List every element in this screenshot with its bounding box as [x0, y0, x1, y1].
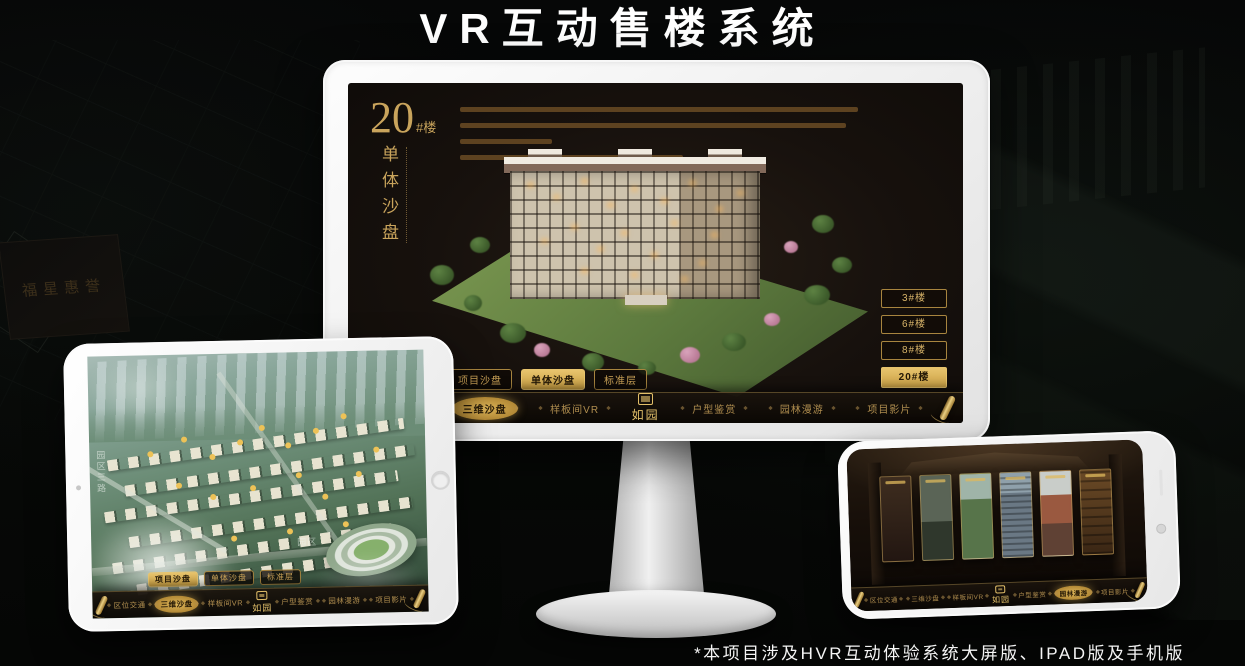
- floor-button-3[interactable]: 3#楼: [881, 289, 947, 308]
- nav-item-garden-roam[interactable]: 园林漫游: [769, 397, 835, 420]
- tree: [722, 333, 746, 351]
- phone-speaker-icon: [1159, 470, 1163, 496]
- scene-card-row: [879, 468, 1114, 562]
- seal-icon: [996, 585, 1006, 593]
- stadium: [321, 515, 422, 585]
- tree: [832, 257, 852, 273]
- nav-item-3d-sandtable[interactable]: 三维沙盘: [154, 595, 198, 613]
- tablet-device: 园区三路 园区 项目沙盘 单体沙盘 标准层 区位交通 三维沙盘 样板间VR 如园…: [63, 336, 459, 632]
- monitor-sub-tabs: 项目沙盘 单体沙盘 标准层: [448, 369, 647, 390]
- tab-standard-floor[interactable]: 标准层: [260, 569, 301, 585]
- scene-card-building[interactable]: [999, 471, 1034, 558]
- block-number: 20: [370, 93, 414, 142]
- phone-nav-bar: 区位交通 三维沙盘 样板间VR 如园 户型鉴赏 园林漫游 项目影片: [851, 577, 1148, 611]
- scene-card-courtyard[interactable]: [919, 474, 954, 561]
- nav-item-unit-gallery[interactable]: 户型鉴赏: [681, 397, 747, 420]
- building-facade: [510, 171, 760, 299]
- tablet-sub-tabs: 项目沙盘 单体沙盘 标准层: [148, 569, 301, 587]
- nav-item-project-film[interactable]: 项目影片: [856, 397, 922, 420]
- background-buildings: [965, 47, 1205, 212]
- scroll-icon[interactable]: [939, 395, 957, 421]
- tablet-home-button[interactable]: [431, 471, 450, 490]
- monitor-stand-neck: [609, 440, 704, 594]
- scroll-icon[interactable]: [1134, 581, 1145, 599]
- nav-item-location-traffic[interactable]: 区位交通: [107, 596, 151, 614]
- lit-windows: [510, 171, 515, 175]
- tab-single-sandtable[interactable]: 单体沙盘: [521, 369, 585, 390]
- nav-item-showroom-vr[interactable]: 样板间VR: [201, 594, 249, 612]
- plaque-text: 福星惠誉: [21, 274, 107, 301]
- floor-button-group: 3#楼 6#楼 8#楼 20#楼: [881, 289, 947, 388]
- footnote: *本项目涉及HVR互动体验系统大屏版、IPAD版及手机版: [694, 639, 1185, 664]
- map-area-label: 园区: [297, 535, 317, 548]
- residential-building: [510, 157, 760, 299]
- scroll-icon[interactable]: [412, 588, 426, 609]
- caption-divider: [406, 147, 407, 243]
- text-line: [460, 123, 846, 128]
- logo-text: 如园: [632, 406, 660, 423]
- tree: [500, 323, 526, 343]
- floor-button-8[interactable]: 8#楼: [881, 341, 947, 360]
- tree: [534, 343, 550, 357]
- scene-card-autumn[interactable]: [1039, 470, 1074, 557]
- ruyuan-logo: 如园: [632, 393, 660, 423]
- nav-item-location-traffic[interactable]: 区位交通: [865, 591, 903, 606]
- nav-item-garden-roam[interactable]: 园林漫游: [1054, 585, 1092, 600]
- tree: [680, 347, 700, 363]
- nav-item-3d-sandtable[interactable]: 三维沙盘: [906, 590, 944, 605]
- building-3d-model[interactable]: [414, 147, 888, 399]
- scene-card-interior[interactable]: [879, 475, 914, 562]
- seal-icon: [256, 590, 267, 599]
- background-plaque: 福星惠誉: [0, 234, 130, 340]
- nav-item-unit-gallery[interactable]: 户型鉴赏: [1013, 586, 1051, 601]
- tree: [430, 265, 454, 285]
- logo-text: 如园: [252, 600, 272, 613]
- ruyuan-logo: 如园: [252, 590, 272, 613]
- tree: [804, 285, 830, 305]
- nav-item-showroom-vr[interactable]: 样板间VR: [947, 588, 988, 603]
- tree: [764, 313, 780, 326]
- tablet-screen: 园区三路 园区 项目沙盘 单体沙盘 标准层 区位交通 三维沙盘 样板间VR 如园…: [87, 350, 428, 619]
- seal-icon: [638, 393, 653, 405]
- monitor-stand-base: [536, 590, 776, 638]
- stage: 福星惠誉 VR互动售楼系统 20#楼 单体沙盘: [0, 0, 1245, 666]
- text-line: [460, 139, 552, 144]
- block-caption: 单体沙盘: [376, 145, 401, 255]
- floor-button-20[interactable]: 20#楼: [881, 367, 947, 388]
- tree: [464, 295, 482, 311]
- floor-button-6[interactable]: 6#楼: [881, 315, 947, 334]
- nav-item-garden-roam[interactable]: 园林漫游: [322, 591, 366, 609]
- tab-project-sandtable[interactable]: 项目沙盘: [448, 369, 512, 390]
- ruyuan-logo: 如园: [992, 585, 1011, 606]
- map-road-label: 园区三路: [94, 450, 108, 494]
- tree: [784, 241, 798, 253]
- tab-standard-floor[interactable]: 标准层: [594, 369, 647, 390]
- phone-device: 区位交通 三维沙盘 样板间VR 如园 户型鉴赏 园林漫游 项目影片: [837, 430, 1181, 620]
- tab-project-sandtable[interactable]: 项目沙盘: [148, 571, 198, 587]
- phone-camera-icon: [1156, 523, 1166, 533]
- nav-item-3d-sandtable[interactable]: 三维沙盘: [452, 397, 518, 420]
- building-number-badges[interactable]: [87, 356, 93, 362]
- tab-single-sandtable[interactable]: 单体沙盘: [204, 570, 254, 586]
- tablet-nav-bar: 区位交通 三维沙盘 样板间VR 如园 户型鉴赏 园林漫游 项目影片: [92, 585, 428, 619]
- tree: [812, 215, 834, 233]
- tablet-camera-icon: [76, 485, 81, 490]
- nav-item-showroom-vr[interactable]: 样板间VR: [539, 397, 610, 420]
- scene-card-garden[interactable]: [959, 473, 994, 560]
- building-entrance: [625, 295, 667, 305]
- phone-screen: 区位交通 三维沙盘 样板间VR 如园 户型鉴赏 园林漫游 项目影片: [846, 439, 1147, 611]
- nav-item-unit-gallery[interactable]: 户型鉴赏: [275, 592, 319, 610]
- text-line: [460, 107, 858, 112]
- page-title: VR互动售楼系统: [0, 0, 1245, 58]
- tree: [470, 237, 490, 253]
- block-unit: #楼: [416, 120, 436, 135]
- scene-card-shelves[interactable]: [1079, 468, 1114, 555]
- logo-text: 如园: [992, 594, 1010, 606]
